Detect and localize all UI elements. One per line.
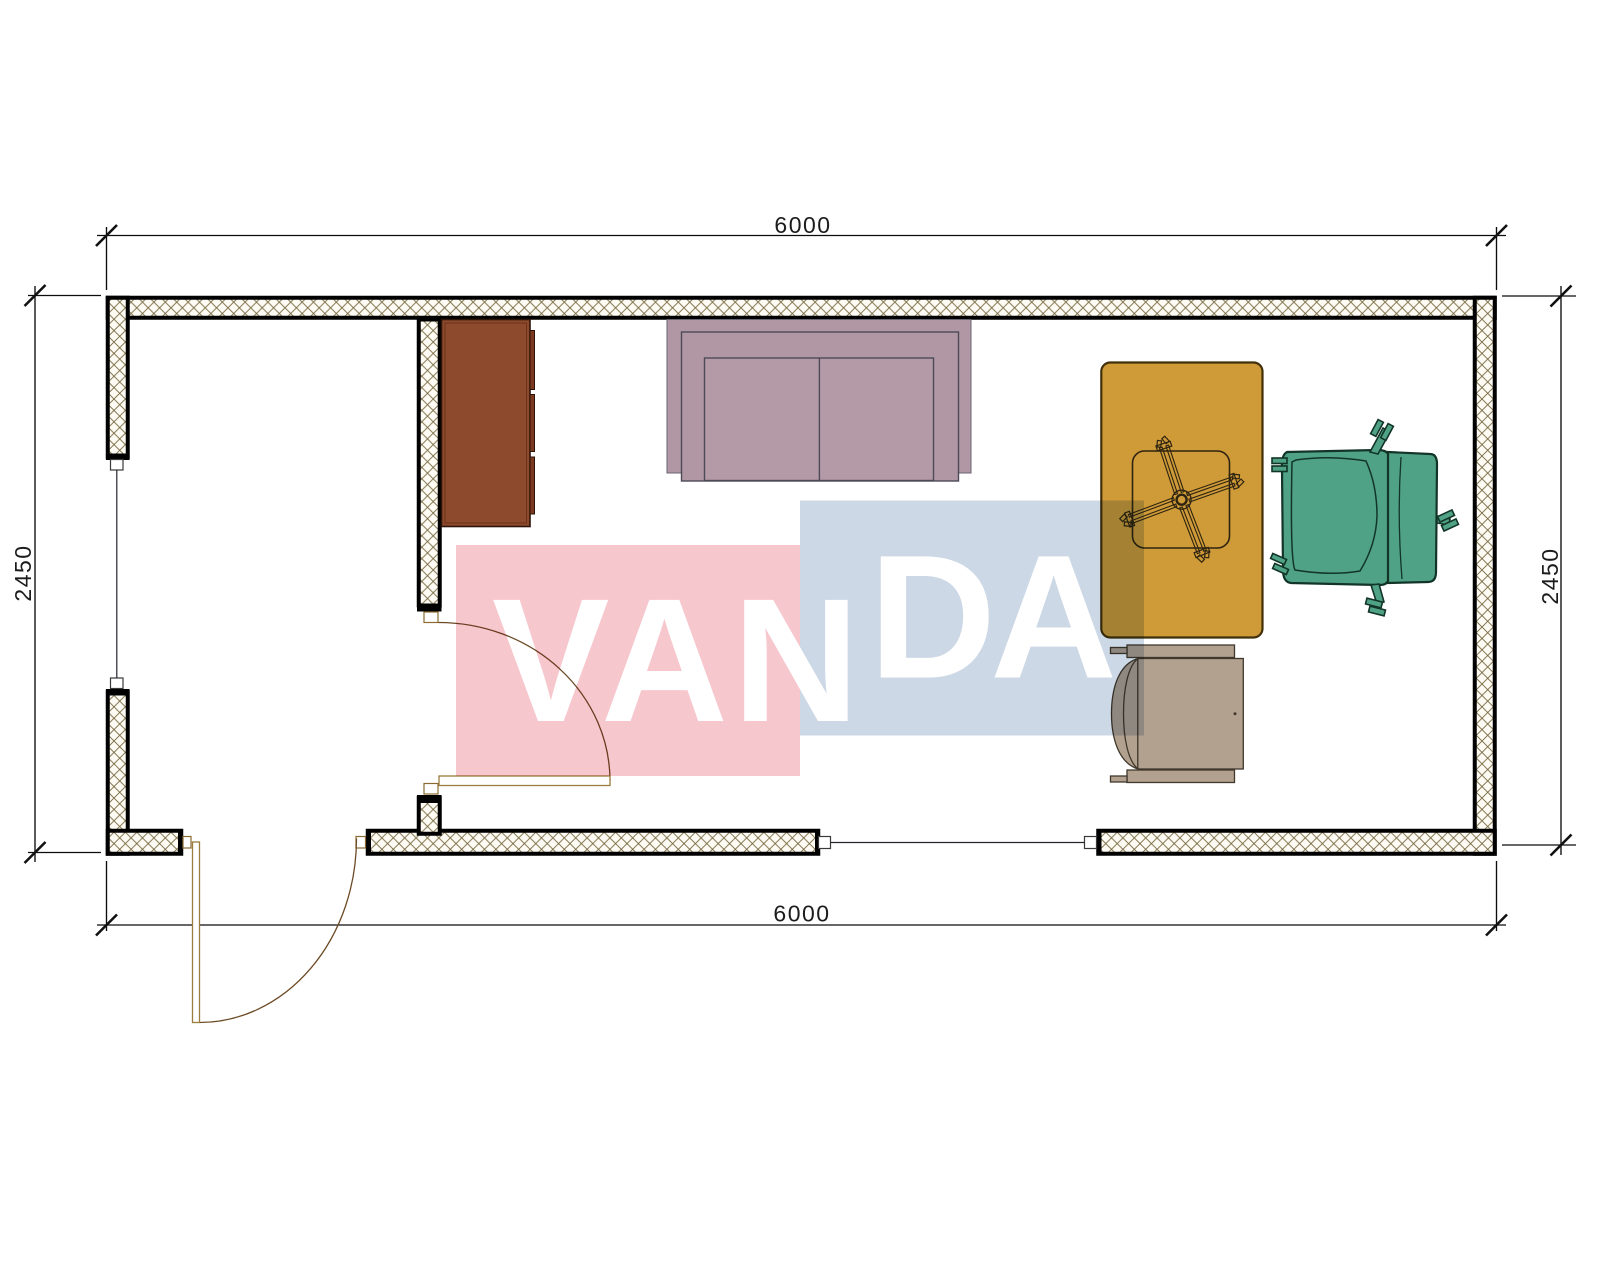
svg-text:DA: DA bbox=[869, 520, 1113, 716]
svg-text:6000: 6000 bbox=[773, 901, 830, 927]
svg-text:VAN: VAN bbox=[492, 563, 864, 759]
svg-text:2450: 2450 bbox=[1537, 547, 1563, 604]
svg-text:6000: 6000 bbox=[774, 212, 831, 238]
svg-text:2450: 2450 bbox=[10, 544, 36, 601]
